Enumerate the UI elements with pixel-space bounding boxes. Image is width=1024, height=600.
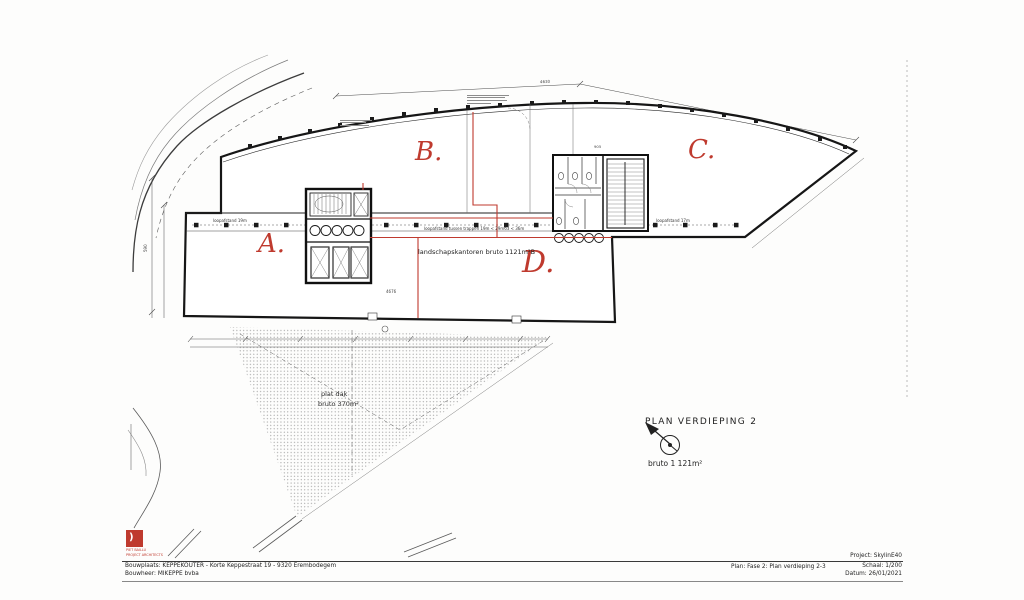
annotation-note bbox=[340, 118, 372, 128]
dim-bottom: 4676 bbox=[386, 290, 396, 295]
dim-top: 4630 bbox=[540, 80, 550, 85]
distance-note-mid: loopafstand tussen trappen 19m < 29m63 <… bbox=[424, 227, 524, 232]
date-label: Datum: 26/01/2021 bbox=[845, 571, 902, 578]
dim-core: 905 bbox=[594, 145, 601, 149]
scale-label: Schaal: 1/200 bbox=[862, 563, 902, 570]
plan-gross-area: bruto 1 121m² bbox=[648, 460, 702, 469]
office-area-label: landschapskantoren bruto 1121m²B bbox=[418, 249, 535, 256]
architect-logo: ) bbox=[126, 530, 143, 547]
roof-label-1: plat dak bbox=[321, 391, 347, 398]
distance-note-right: loopafstand 17m bbox=[656, 219, 690, 224]
titleblock-rule-top bbox=[122, 561, 903, 562]
titleblock-rule-bottom bbox=[122, 581, 903, 582]
scan-edge-text bbox=[906, 60, 908, 400]
client-name: Bouwheer: MIKEPPE bvba bbox=[125, 571, 199, 578]
plan-linework bbox=[0, 0, 1024, 600]
roof-label-2: bruto 370m² bbox=[318, 401, 359, 408]
zone-label-b: B. bbox=[415, 138, 442, 168]
zone-label-a: A. bbox=[258, 230, 285, 260]
dim-left: 590 bbox=[144, 244, 149, 252]
plan-title: PLAN VERDIEPING 2 bbox=[645, 417, 757, 427]
project-name: Project: SkylinE40 bbox=[850, 553, 902, 560]
annotation-note bbox=[467, 93, 509, 105]
distance-note-left: loopafstand 19m bbox=[213, 219, 247, 224]
zone-label-c: C. bbox=[688, 136, 715, 166]
logo-subtitle: PROJECT ARCHITECTS bbox=[126, 554, 163, 558]
site-address: Bouwplaats: KEPPEKOUTER - Korte Keppestr… bbox=[125, 563, 336, 570]
floor-plan-sheet: A. B. C. D. landschapskantoren bruto 112… bbox=[0, 0, 1024, 600]
plan-name: Plan: Fase 2: Plan verdieping 2-3 bbox=[731, 564, 826, 571]
